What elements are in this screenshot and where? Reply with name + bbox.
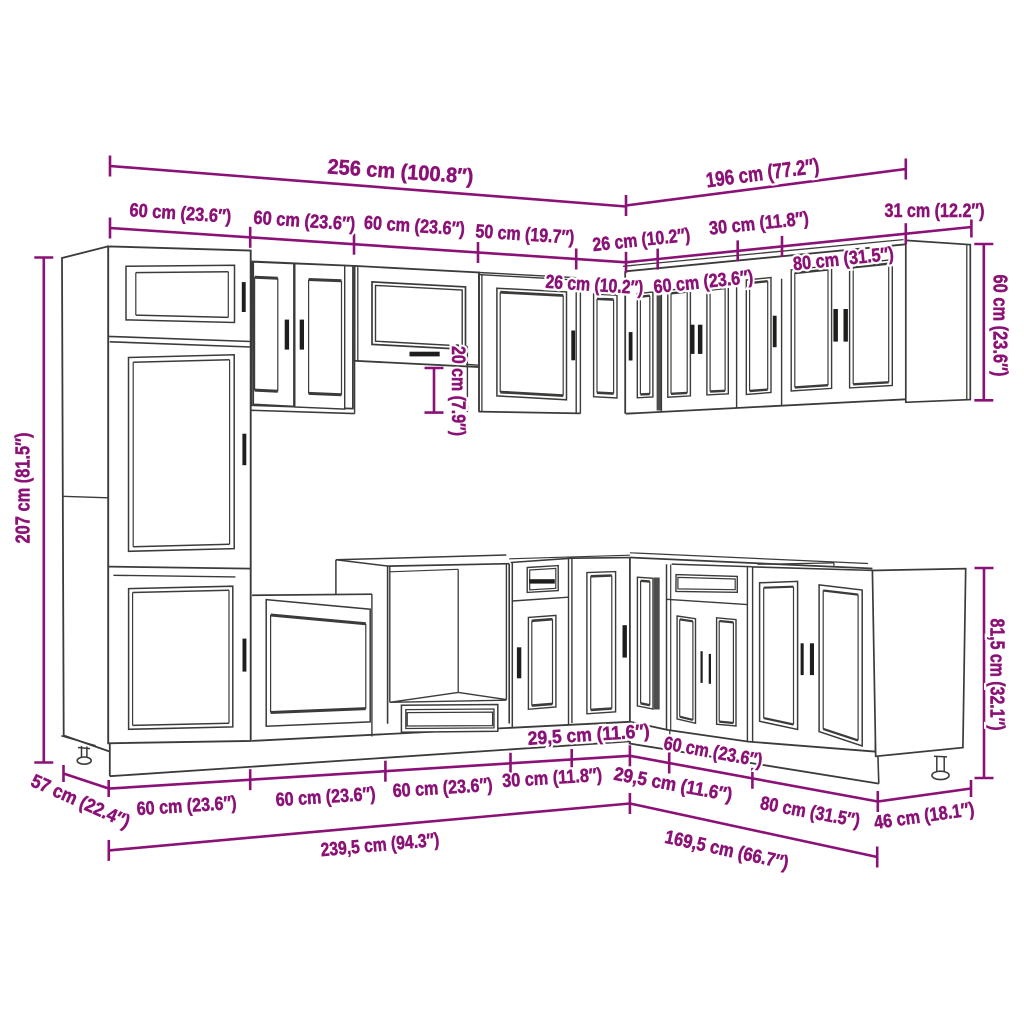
svg-text:81,5 cm (32.1″): 81,5 cm (32.1″) [986, 619, 1008, 731]
svg-text:60 cm (23.6″): 60 cm (23.6″) [989, 275, 1011, 377]
svg-text:31 cm (12.2″): 31 cm (12.2″) [885, 201, 985, 222]
svg-text:207 cm (81.5″): 207 cm (81.5″) [13, 433, 35, 544]
svg-text:20 cm (7.9″): 20 cm (7.9″) [447, 346, 468, 436]
